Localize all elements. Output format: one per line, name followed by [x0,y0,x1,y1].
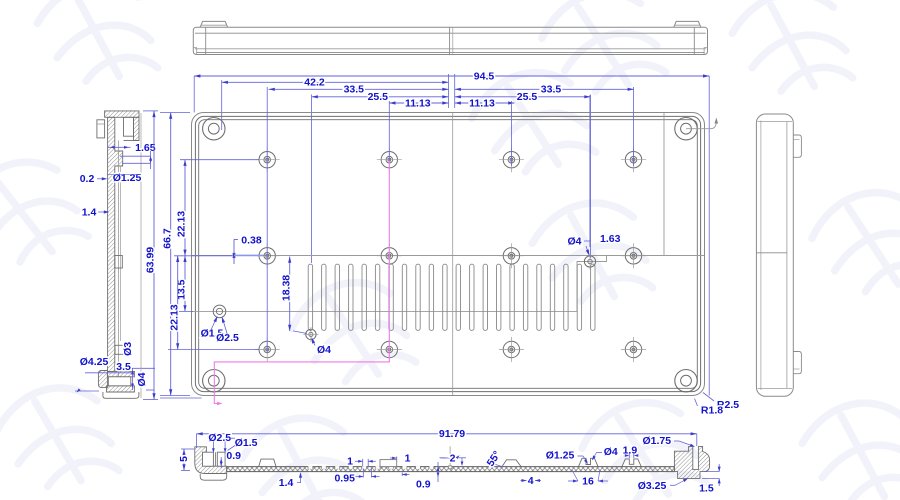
svg-text:0.2: 0.2 [80,173,95,185]
svg-text:R1.8: R1.8 [701,405,723,417]
svg-text:1.5: 1.5 [699,483,714,495]
svg-text:Ø4: Ø4 [567,236,581,248]
svg-text:94.5: 94.5 [474,71,495,83]
svg-text:Ø1.25: Ø1.25 [113,172,142,184]
svg-text:0.9: 0.9 [226,450,241,462]
svg-text:3.5: 3.5 [116,361,131,373]
svg-text:Ø4.25: Ø4.25 [80,356,109,368]
svg-text:1: 1 [347,456,353,468]
svg-text:Ø3.25: Ø3.25 [638,480,667,492]
svg-text:Ø2.5: Ø2.5 [208,432,231,444]
svg-text:11.13: 11.13 [469,97,495,109]
svg-text:63.99: 63.99 [145,247,157,273]
svg-text:66.7: 66.7 [161,228,173,249]
svg-text:1.63: 1.63 [600,233,621,245]
svg-text:91.79: 91.79 [439,428,465,440]
svg-text:Ø4: Ø4 [604,446,618,458]
svg-text:4: 4 [528,475,534,487]
svg-text:11.13: 11.13 [405,97,431,109]
svg-text:0.38: 0.38 [241,234,262,246]
svg-text:25.5: 25.5 [517,91,538,103]
svg-text:1.4: 1.4 [82,207,97,219]
svg-text:0.9: 0.9 [416,478,431,490]
svg-text:0.95: 0.95 [334,472,355,484]
svg-text:42.2: 42.2 [304,76,325,88]
svg-text:33.5: 33.5 [344,83,365,95]
svg-text:Ø3: Ø3 [122,342,134,356]
svg-text:1.4: 1.4 [279,477,294,489]
svg-text:18.38: 18.38 [280,275,292,301]
svg-text:5: 5 [178,456,190,462]
svg-text:22.13: 22.13 [176,211,188,237]
svg-text:1.65: 1.65 [135,142,156,154]
svg-text:22.13: 22.13 [168,304,180,330]
svg-text:Ø1.75: Ø1.75 [642,435,671,447]
svg-text:25.5: 25.5 [368,91,389,103]
svg-text:Ø4: Ø4 [136,372,148,386]
svg-text:Ø1.25: Ø1.25 [546,450,575,462]
svg-text:1: 1 [405,453,411,465]
svg-text:Ø4: Ø4 [317,344,331,356]
svg-text:Ø1.5: Ø1.5 [235,437,258,449]
svg-text:16: 16 [582,476,594,488]
svg-text:33.5: 33.5 [541,83,562,95]
svg-text:2: 2 [450,452,456,464]
